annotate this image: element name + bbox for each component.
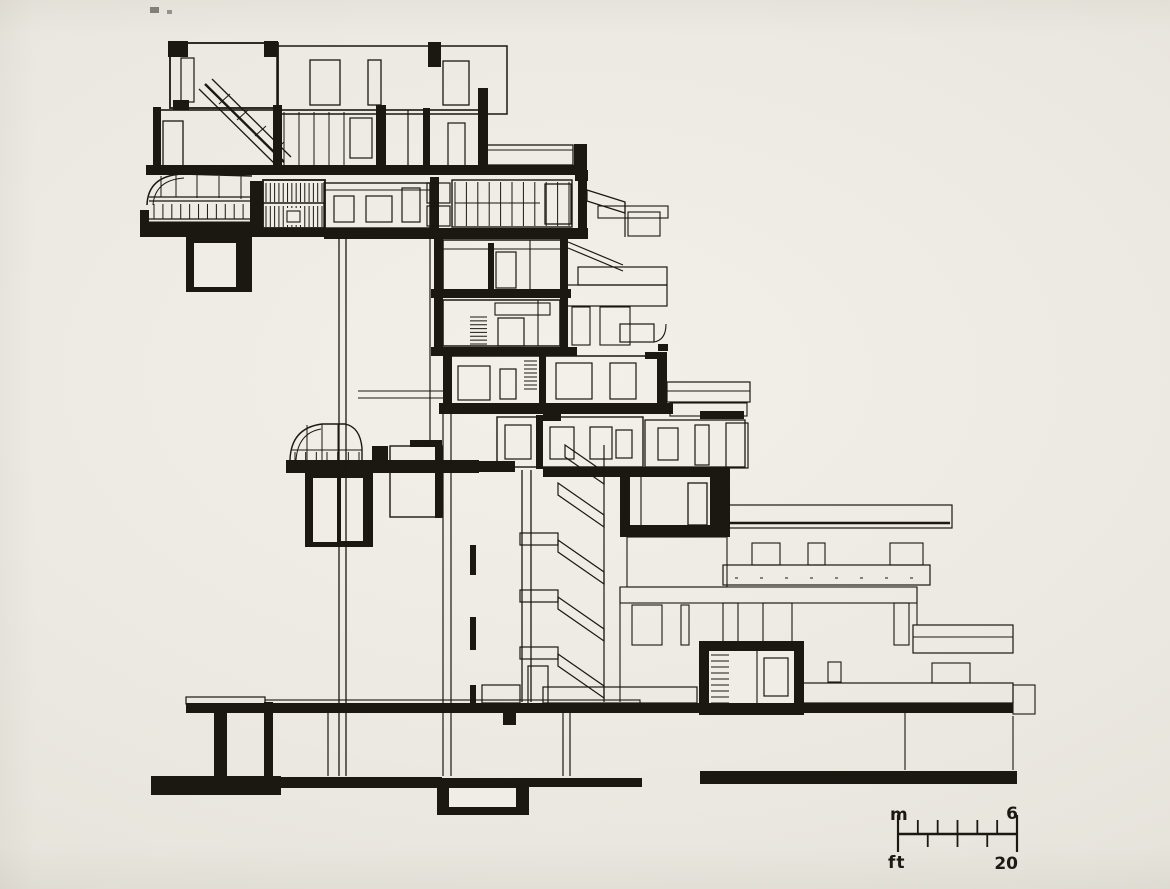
paper-sheet: m 6 ft 20 [0, 0, 1170, 889]
scale-ft-label: ft [888, 853, 906, 873]
habitat-section-drawing: m 6 ft 20 [0, 0, 1170, 889]
scale-bar: m 6 ft 20 [888, 804, 1018, 874]
scale-ft-value: 20 [994, 854, 1018, 874]
section-linework [140, 7, 1035, 815]
